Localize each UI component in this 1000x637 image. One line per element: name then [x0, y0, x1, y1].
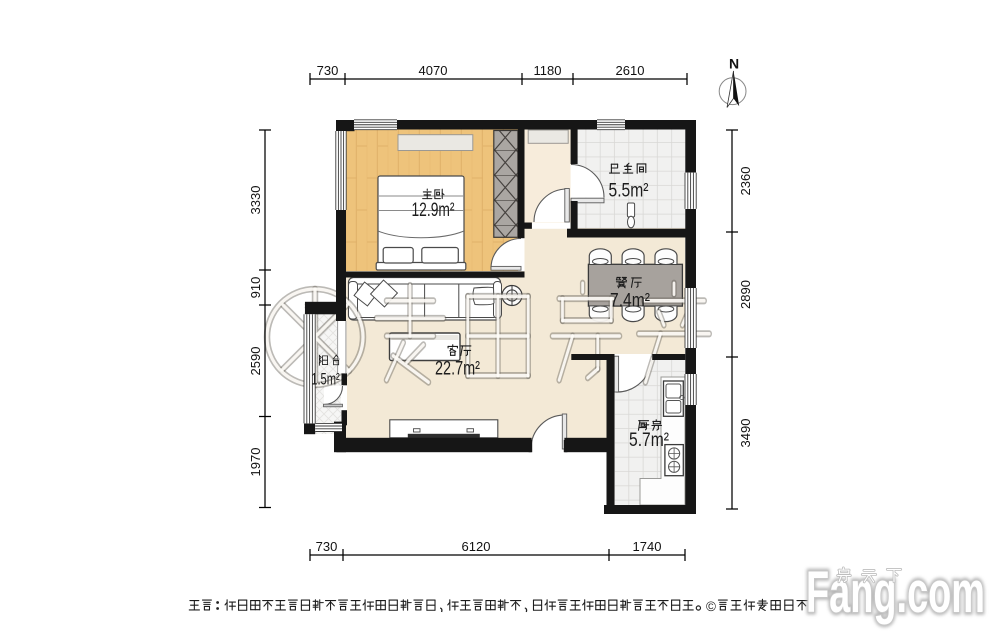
svg-text:2590: 2590: [248, 347, 263, 376]
svg-text:2610: 2610: [616, 63, 645, 78]
svg-text:910: 910: [248, 277, 263, 299]
svg-text:1.5m²: 1.5m²: [311, 371, 340, 389]
svg-text:1740: 1740: [633, 539, 662, 554]
svg-text:730: 730: [316, 539, 338, 554]
svg-text:1180: 1180: [534, 63, 562, 78]
svg-text:4070: 4070: [419, 63, 448, 78]
svg-text:730: 730: [317, 63, 339, 78]
svg-text:5.5m²: 5.5m²: [609, 181, 649, 202]
svg-text:2890: 2890: [738, 280, 753, 309]
svg-text:7.4m²: 7.4m²: [610, 291, 650, 312]
svg-text:2360: 2360: [738, 167, 753, 196]
svg-text:1970: 1970: [248, 448, 263, 477]
svg-text:3490: 3490: [738, 419, 753, 448]
svg-text:N: N: [729, 56, 739, 72]
svg-text:6120: 6120: [462, 539, 491, 554]
svg-text:5.7m²: 5.7m²: [629, 430, 669, 451]
svg-text:12.9m²: 12.9m²: [412, 200, 455, 221]
svg-text:©: ©: [706, 599, 716, 614]
svg-text:22.7m²: 22.7m²: [435, 359, 480, 380]
svg-text:3330: 3330: [248, 186, 263, 215]
